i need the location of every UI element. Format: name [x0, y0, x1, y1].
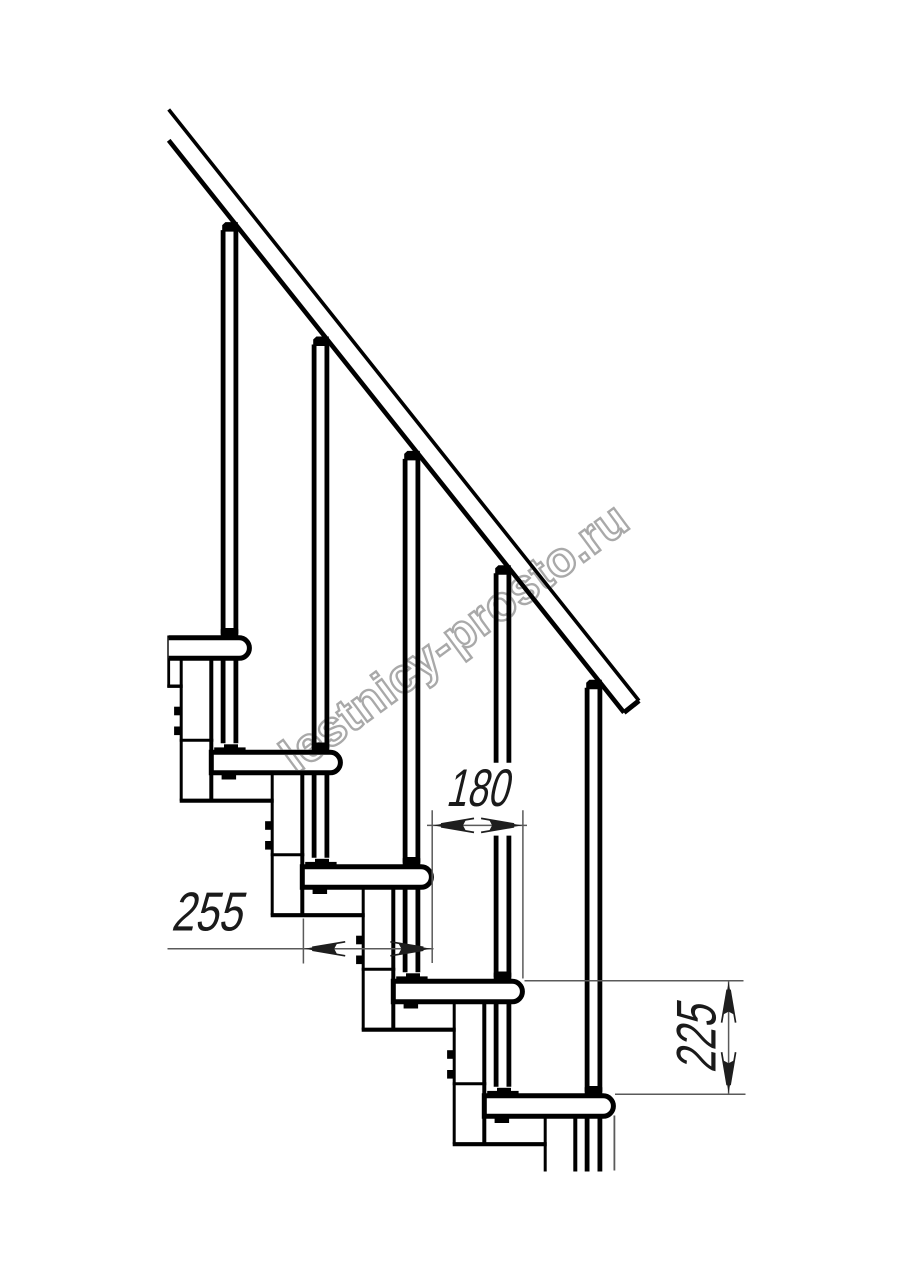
svg-text:255: 255 [168, 881, 253, 943]
